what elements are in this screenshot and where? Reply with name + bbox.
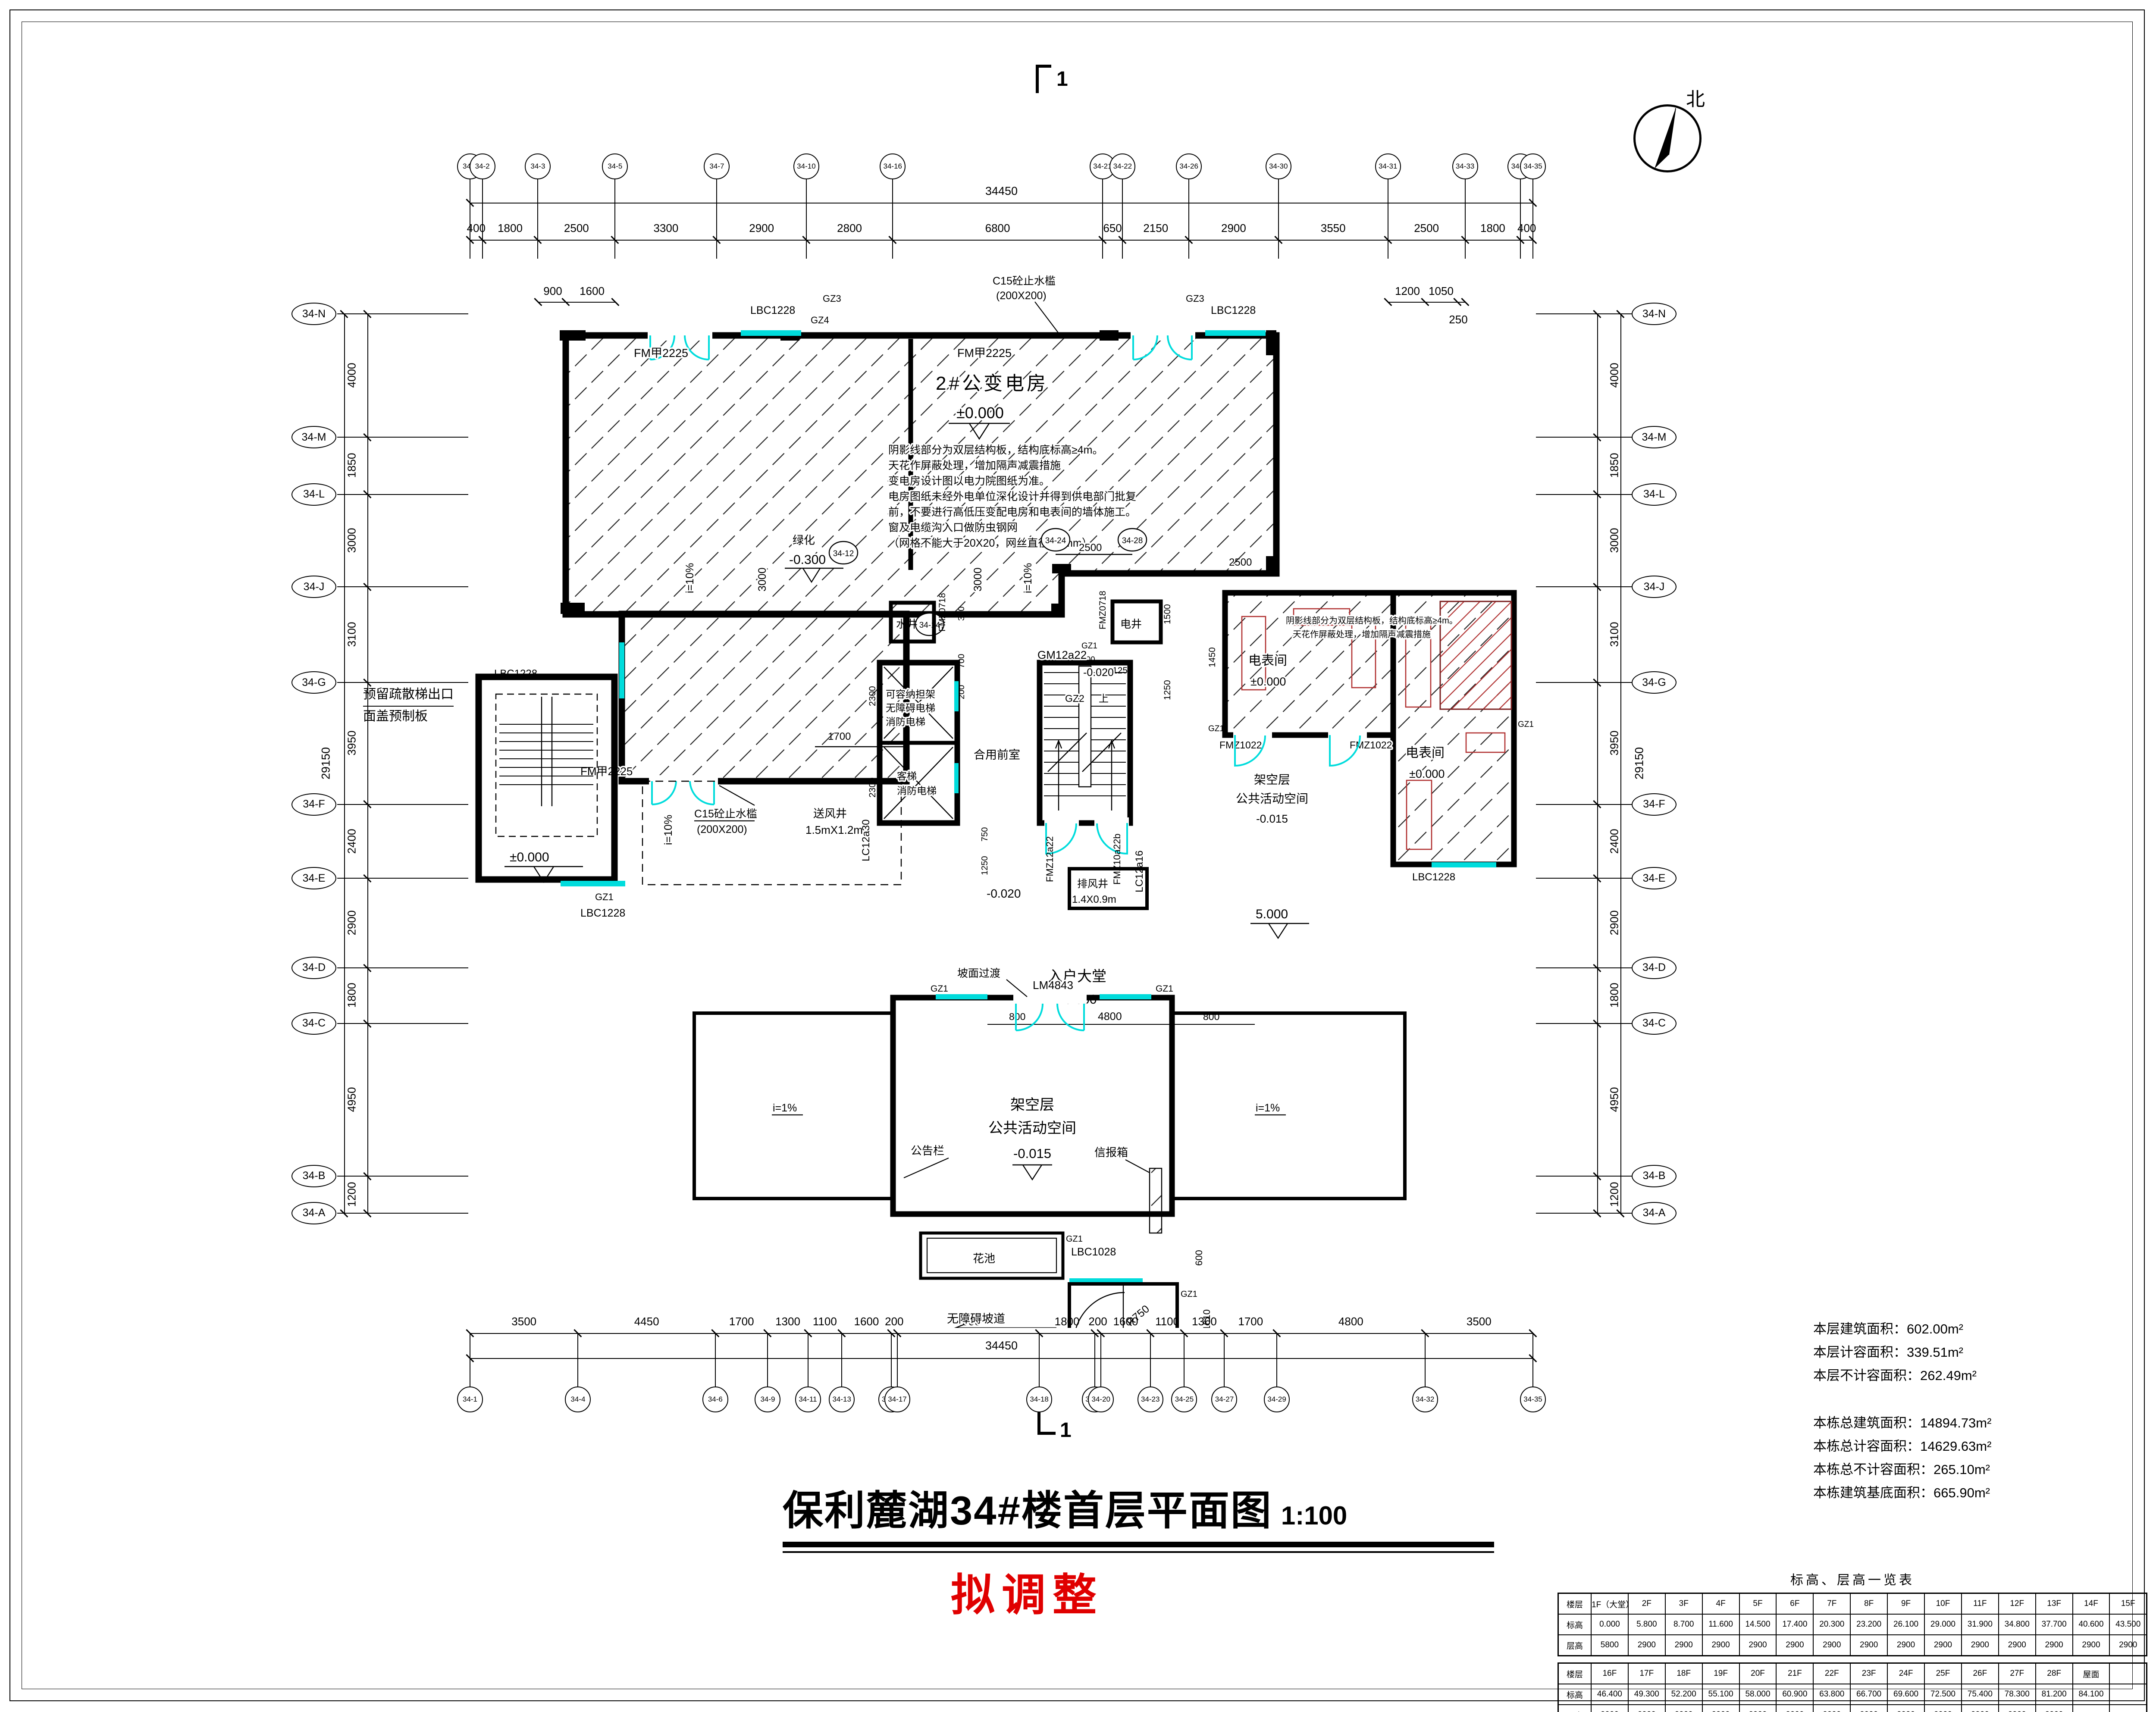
dim-value: 2400 [345,811,359,871]
north-needle-icon [1636,106,1699,170]
table-band-2: 楼层16F17F18F19F20F21F22F23F24F25F26F27F28… [1557,1662,2147,1712]
dim-value: 1200 [1608,1164,1621,1224]
table-cell: 17.400 [1776,1614,1813,1635]
grid-bubble-label: 34-12 [833,549,854,558]
grid-axis-stub [1100,1333,1101,1387]
grid-axis-stub [891,1333,892,1387]
table-cell: 2900 [1999,1635,2036,1656]
meter-note-line2: 天花作屏蔽处理，增加隔声减震措施 [1293,629,1431,639]
left-mid-block: LBC1228 FM甲2225 i=10% C15砼止水槛 (200X200) … [494,614,906,885]
window-tag: LBC1028 [1071,1246,1116,1258]
dim-value: 3950 [345,713,359,773]
dim-label: 3000 [972,567,984,592]
north-label: 北 [1686,84,1705,111]
grid-bubble: 34-D [291,957,336,979]
door-tag: LM4843 [1033,979,1073,992]
grid-bubble: 34-F [291,793,336,816]
table-cell: 8F [1850,1593,1887,1615]
shaft-size: 1.4X0.9m [1072,894,1116,905]
section-mark-bracket-top [1036,65,1051,93]
grid-bubble: 34-4 [565,1387,591,1412]
table-cell: 2900 [1887,1705,1924,1712]
dim-label: 800 [1009,1011,1025,1022]
table-title: 标高、层高一览表 [1557,1569,2147,1588]
table-cell: 52.200 [1665,1684,1702,1705]
dim-value: 4000 [345,345,359,406]
stair-exit-note-line2: 面盖预制板 [363,707,454,726]
table-cell: 20.300 [1813,1614,1850,1635]
grid-bubble: 34-26 [1176,153,1202,179]
level-value: -0.020 [1083,667,1114,679]
table-band-1: 楼层1F（大堂）2F3F4F5F6F7F8F9F10F11F12F13F14F1… [1557,1593,2147,1656]
table-cell: 4F [1702,1593,1739,1615]
table-cell: 2900 [1776,1635,1813,1656]
dim-value: 4950 [345,1069,359,1130]
grid-bubble: 34-1 [457,1387,483,1412]
greening-name: 绿化 [793,534,815,547]
shaft-name: 送风井 [813,807,847,820]
table-cell: 5800 [1591,1635,1628,1656]
column-tag: GZ1 [1066,1234,1083,1244]
table-row: 标高46.40049.30052.20055.10058.00060.90063… [1558,1684,2147,1705]
table-cell: 2900 [1702,1705,1739,1712]
grid-bubble: 34-20 [1088,1387,1114,1412]
table-cell: 18F [1665,1663,1702,1684]
table-row: 楼层16F17F18F19F20F21F22F23F24F25F26F27F28… [1558,1663,2147,1684]
dim-label: 300 [957,607,966,621]
grid-bubble: 34-N [1632,303,1677,325]
table-cell: 2900 [2073,1635,2110,1656]
table-cell: 16F [1591,1663,1628,1684]
floor-height-table: 标高、层高一览表 楼层1F（大堂）2F3F4F5F6F7F8F9F10F11F1… [1557,1569,2147,1712]
column-tag: GZ1 [1156,984,1173,994]
window-tag: LC12a16 [1134,851,1145,892]
door-tag: FM甲2225 [957,347,1012,360]
dim-value: 4000 [1608,345,1621,406]
grid-axis-stub [337,313,468,314]
dim-value: 2150 [1125,222,1186,235]
elevator-label: 消防电梯 [897,785,937,796]
table-cell: 34.800 [1999,1614,2036,1635]
dim-label: 3000 [756,567,768,592]
dim-value: 4950 [1608,1069,1621,1130]
transformer-hall: FM甲2225 FM甲2225 LBC1228 GZ3 GZ4 GZ3 LBC1… [560,275,1276,615]
grid-axis-stub [808,1333,808,1387]
page-title: 保利麓湖34#楼首层平面图 [783,1488,1272,1533]
grid-bubble-label: 34-28 [1122,536,1143,545]
table-cell: 22F [1813,1663,1850,1684]
grid-bubble: 34-35 [1520,1387,1546,1412]
dim-label: 1450 [1207,647,1217,667]
table-cell: 2900 [1739,1705,1777,1712]
dim-value: 2500 [1396,222,1457,235]
stat-gap [1813,1387,1991,1412]
meter-rooms: 电表间 ±0.000 电表间 ±0.000 阴影线部分为双层结构板，结构底标高≥… [1207,557,1534,1173]
grid-axis-stub [897,1333,898,1387]
dim-value: 1850 [1608,435,1621,496]
table-cell: 0.000 [1591,1614,1628,1635]
table-cell: 11.600 [1702,1614,1739,1635]
grid-bubble: 34-3 [525,153,551,179]
elevator-label: 客梯 [897,770,917,782]
column-tag: GZ4 [811,315,829,325]
table-cell: 2900 [1850,1635,1887,1656]
slope-label: i=10% [662,815,674,845]
table-row: 层高58002900290029002900290029002900290029… [1558,1635,2147,1656]
table-cell: 2900 [1962,1705,1999,1712]
drawing-sheet: 34-134-234-334-534-734-1034-1634-2134-22… [0,0,2156,1712]
table-row: 楼层1F（大堂）2F3F4F5F6F7F8F9F10F11F12F13F14F1… [1558,1593,2147,1615]
shaft-name: 水井 [896,618,918,630]
grid-bubble: 34-6 [702,1387,728,1412]
elevator-label: 可容纳担架 [886,689,935,700]
table-cell: 2900 [1776,1705,1813,1712]
grid-axis-stub [841,1333,842,1387]
grid-bubble: 34-22 [1109,153,1135,179]
level-value: ±0.000 [956,404,1004,422]
shaft-name: 排风井 [1077,878,1108,890]
grid-axis-stub [337,682,468,683]
table-cell: 6F [1776,1593,1813,1615]
grid-axis-stub [577,1333,578,1387]
dim-value: 1800 [1608,965,1621,1026]
grid-line [470,240,1533,241]
column-tag: GZ1 [595,892,614,902]
level-value: -0.020 [987,887,1021,900]
column-tag: GZ2 [1065,693,1084,704]
site-works: 花池 GZ1 LBC1028 GZ1 无障碍坡道 R750 1900 200 1… [921,1233,1238,1328]
table-rowhead: 楼层 [1558,1663,1592,1684]
table-rowhead: 标高 [1558,1614,1592,1635]
table-cell: 2900 [2036,1635,2073,1656]
grid-bubble: 34-33 [1452,153,1478,179]
door-tag: FMZ10a22b [1112,833,1122,885]
grid-line [470,1358,1533,1359]
table-cell: 2900 [1887,1635,1924,1656]
dim-label: 2500 [1229,557,1252,568]
grid-bubble: 34-F [1632,793,1677,816]
note-line: 前，不要进行高低压变配电房和电表间的墙体施工。 [888,506,1136,518]
waterstop-note-line1: C15砼止水槛 [993,275,1056,287]
stat-line: 本栋总计容面积：14629.63m² [1813,1435,1991,1458]
shaft-size: 1.5mX1.2m [805,823,863,836]
table-cell: 2F [1628,1593,1665,1615]
table-rowhead: 层高 [1558,1705,1592,1712]
dim-label: 2500 [1079,542,1102,554]
table-cell: 8.700 [1665,1614,1702,1635]
table-cell: 63.800 [1813,1684,1850,1705]
grid-bubble-label: 34-24 [1045,536,1066,545]
elevator-label: 消防电梯 [886,716,925,727]
dim-value: 1200 [345,1164,359,1224]
grid-bubble: 34-N [291,303,336,325]
note-line: 变电房设计图以电力院图纸为准。 [888,475,1050,487]
grid-axis-stub [1184,1333,1185,1387]
waterstop-note-line1: C15砼止水槛 [694,808,757,820]
table-rowhead: 层高 [1558,1635,1592,1656]
flower-bed-label: 花池 [973,1252,995,1265]
stat-line: 本栋总不计容面积：265.10m² [1813,1458,1991,1481]
table-cell: 66.700 [1850,1684,1887,1705]
grid-bubble: 34-M [291,426,336,448]
grid-bubble: 34-M [1632,426,1677,448]
grid-axis-stub [767,1333,768,1387]
column-tag: GZ3 [1186,293,1204,304]
table-cell: 25F [1924,1663,1962,1684]
grid-line [470,203,1533,203]
dim-value: 1850 [345,435,359,496]
grid-axis-stub [1276,1333,1277,1387]
greening-level: -0.300 [789,553,826,567]
table-cell: 78.300 [1999,1684,2036,1705]
stat-line: 本栋总建筑面积：14894.73m² [1813,1412,1991,1435]
table-cell: 2900 [1739,1635,1777,1656]
dim-value: 400 [1497,222,1557,235]
grid-bubble: 34-16 [880,153,906,179]
dim-label: 4800 [1098,1011,1122,1023]
table-cell: 69.600 [1887,1684,1924,1705]
title-rule-thin [783,1551,1494,1553]
room-label-stilt-2: 公共活动空间 [1236,792,1308,805]
table-cell: 2900 [1999,1705,2036,1712]
dim-value: 29150 [320,733,333,793]
door-tag: FMZ0718 [937,593,947,632]
stair-exit-note: 预留疏散梯出口 面盖预制板 [363,685,454,726]
grid-bubble: 34-A [291,1202,336,1224]
grid-bubble: 34-A [1632,1202,1677,1224]
table-cell: 14.500 [1739,1614,1777,1635]
area-statistics: 本层建筑面积：602.00m²本层计容面积：339.51m²本层不计容面积：26… [1813,1318,1991,1505]
table-cell: 5F [1739,1593,1777,1615]
dim-value: 3950 [1608,713,1621,773]
room-label-meter-a: 电表间 [1248,654,1287,668]
grid-bubble: 34-G [291,671,336,694]
table-cell: 31.900 [1962,1614,1999,1635]
ramp-radius: R750 [1124,1303,1152,1328]
ramp-label: 无障碍坡道 [947,1312,1005,1325]
table-cell: 2900 [1924,1635,1962,1656]
dim-value: 3000 [345,510,359,570]
table-cell: 55.100 [1702,1684,1739,1705]
table-cell: 2900 [1813,1635,1850,1656]
table-row: 层高29002900290029002900290029002900290029… [1558,1705,2147,1712]
grid-bubble: 34-10 [793,153,819,179]
dim-label: 1250 [1163,680,1172,700]
room-label-stilt-2: 公共活动空间 [988,1120,1076,1136]
table-rowhead: 楼层 [1558,1593,1592,1615]
table-cell: 27F [1999,1663,2036,1684]
dim-value: 2500 [546,222,607,235]
waterstop-note-line2: (200X200) [697,823,747,836]
table-cell: 49.300 [1628,1684,1665,1705]
table-cell: 2900 [1924,1705,1962,1712]
elevator-label: 无障碍电梯 [886,702,935,714]
window-tag: LBC1228 [750,304,795,316]
table-cell: 84.100 [2073,1684,2110,1705]
door-tag: FMZ1022 [1219,739,1262,751]
dim-value: 2900 [1203,222,1264,235]
dim-value: 2900 [345,893,359,953]
table-cell: 24F [1887,1663,1924,1684]
dim-value: 3550 [1303,222,1363,235]
direction-label: 上 [1099,693,1109,704]
window-tag: LBC1228 [1211,304,1256,316]
grid-bubble: 34-13 [829,1387,855,1412]
level-value: ±0.000 [510,850,549,864]
table-cell: 58.000 [1739,1684,1777,1705]
grid-bubble: 34-35 [1520,153,1546,179]
table-row: 标高0.0005.8008.70011.60014.50017.40020.30… [1558,1614,2147,1635]
dim-value: 34450 [967,1339,1036,1352]
grid-bubble: 34-30 [1266,153,1291,179]
grid-bubble: 34-5 [602,153,628,179]
stair-door-tag: GM12a22 [1037,648,1087,661]
column-tag: GZ1 [1181,1289,1197,1299]
dim-label: 750 [980,827,990,842]
slope-label: i=10% [1022,563,1034,593]
table-cell: 11F [1962,1593,1999,1615]
shaft-name: 电井 [1120,618,1142,630]
table-cell: 5.800 [1628,1614,1665,1635]
table-cell: 2900 [1850,1705,1887,1712]
door-tag: FMZ0718 [1098,591,1108,629]
grid-axis-stub [337,586,468,587]
grid-axis-stub [1039,1333,1040,1387]
revision-note: 拟调整 [951,1560,1494,1623]
table-cell: 2900 [1813,1705,1850,1712]
notice-board-label: 公告栏 [911,1144,944,1157]
section-mark-number-bottom: 1 [1060,1418,1072,1442]
grid-axis-stub [337,804,468,805]
table-cell: 12F [1999,1593,2036,1615]
grid-line [470,1333,1533,1334]
table-cell: 屋面 [2073,1663,2110,1684]
waterstop-note-line2: (200X200) [996,290,1047,302]
dim-value: 1800 [345,965,359,1026]
door-tag: FMZ12a22 [1044,836,1055,882]
dim-value: 2900 [1608,893,1621,953]
dim-value: 3100 [345,604,359,665]
grid-bubble: 34-D [1632,957,1677,979]
grid-bubble: 34-L [1632,483,1677,506]
table-cell: 2900 [1702,1635,1739,1656]
table-cell [2109,1705,2147,1712]
grid-axis-stub [1094,1333,1095,1387]
slope-transition-label: 坡面过渡 [957,967,1000,980]
table-cell: 28F [2036,1663,2073,1684]
table-cell: 40.600 [2073,1614,2110,1635]
room-label-stilt-1: 架空层 [1254,773,1290,786]
table-cell: 3F [1665,1593,1702,1615]
grid-bubble: 34-17 [884,1387,910,1412]
lower-activity-room: LM4843 坡面过渡 GZ1 GZ1 架空层 公共活动空间 -0.015 公告… [694,967,1405,1233]
window-tag: LBC1228 [1412,871,1455,883]
stat-line: 本层建筑面积：602.00m² [1813,1318,1991,1341]
drawing-scale: 1:100 [1281,1501,1347,1530]
table-cell: 10F [1924,1593,1962,1615]
table-cell: 75.400 [1962,1684,1999,1705]
dim-label: 2300 [868,777,877,798]
table-cell: 26.100 [1887,1614,1924,1635]
slope-label: i=10% [684,563,696,593]
level-value: -0.015 [1013,1146,1051,1161]
table-cell: 9F [1887,1593,1924,1615]
grid-axis-stub [1425,1333,1426,1387]
grid-bubble: 34-G [1632,671,1677,694]
table-cell: 46.400 [1591,1684,1628,1705]
dim-value: 34450 [967,185,1036,198]
dim-value: 6800 [968,222,1028,235]
level-value: ±0.000 [1250,675,1286,688]
slope-label: i=1% [1256,1102,1280,1114]
grid-bubble: 34-7 [704,153,730,179]
table-cell: 2900 [1665,1705,1702,1712]
table-cell: 72.500 [1924,1684,1962,1705]
dim-value: 3300 [636,222,696,235]
grid-bubble: 34-J [291,576,336,598]
dim-value: 29150 [1633,733,1646,793]
dim-label: 1500 [1163,604,1172,624]
grid-bubble: 34-18 [1026,1387,1052,1412]
table-cell: 2900 [2109,1635,2147,1656]
table-cell [2073,1705,2110,1712]
room-label-transformer: 2#公变电房 [936,373,1048,394]
table-cell: 20F [1739,1663,1777,1684]
table-cell: 2900 [1962,1635,1999,1656]
grid-bubble: 34-B [291,1165,336,1187]
grid-axis-stub [715,1333,716,1387]
grid-bubble: 34-32 [1412,1387,1438,1412]
meter-note-line1: 阴影线部分为双层结构板，结构底标高≥4m。 [1286,616,1458,626]
grid-bubble: 34-J [1632,576,1677,598]
grid-bubble: 34-B [1632,1165,1677,1187]
table-cell: 14F [2073,1593,2110,1615]
room-label-shared-front: 合用前室 [974,748,1020,761]
note-line: 天花作屏蔽处理，增加隔声减震措施 [888,460,1061,472]
window-tag: LC12a30 [860,820,872,861]
column-tag: GZ1 [1518,720,1534,729]
grid-bubble: 34-29 [1264,1387,1290,1412]
table-cell: 2900 [2036,1705,2073,1712]
table-cell: 2900 [1591,1705,1628,1712]
table-cell: 23.200 [1850,1614,1887,1635]
dim-value: 2800 [819,222,880,235]
table-cell: 2900 [1665,1635,1702,1656]
dim-value: 2900 [731,222,792,235]
level-value: ±0.000 [1409,767,1445,780]
grid-bubble: 34-C [1632,1012,1677,1035]
grid-bubble: 34-31 [1375,153,1401,179]
stat-line: 本栋建筑基底面积：665.90m² [1813,1481,1991,1505]
dim-label: 2300 [868,686,877,706]
grid-bubble: 34-11 [795,1387,821,1412]
table-cell: 21F [1776,1663,1813,1684]
table-cell: 81.200 [2036,1684,2073,1705]
table-cell: 1F（大堂） [1591,1593,1628,1615]
table-cell: 2900 [1628,1635,1665,1656]
note-line: 电房图纸未经外电单位深化设计并得到供电部门批复 [888,491,1136,503]
grid-axis-stub [1150,1333,1151,1387]
window-tag: LBC1228 [580,907,625,919]
title-block: 保利麓湖34#楼首层平面图1:100 拟调整 [783,1478,1494,1623]
note-line: 阴影线部分为双层结构板，结构底标高≥4m。 [888,444,1103,456]
stat-line: 本层计容面积：339.51m² [1813,1341,1991,1364]
door-tag: FM甲2225 [634,347,688,360]
grid-axis-stub [470,1333,470,1387]
table-cell: 15F [2109,1593,2147,1615]
grid-bubble: 34-C [291,1012,336,1035]
table-cell: 23F [1850,1663,1887,1684]
